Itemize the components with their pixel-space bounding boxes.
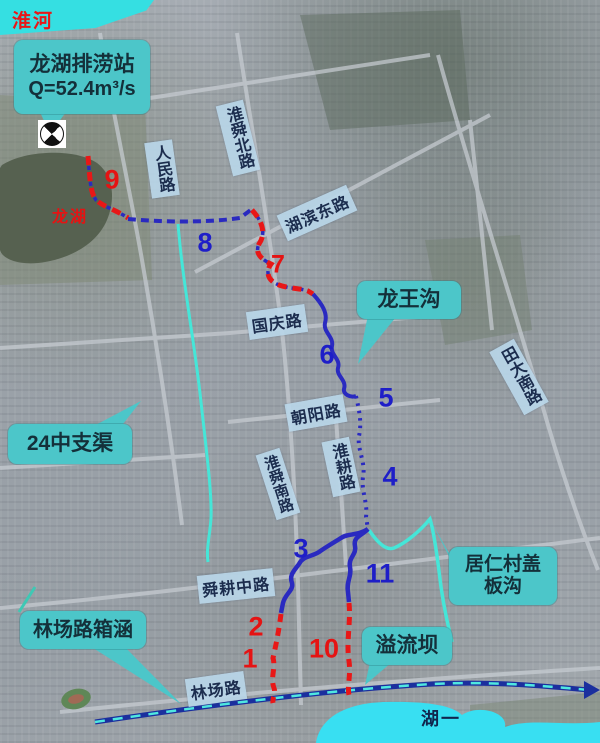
route-marker-1: 1 bbox=[242, 646, 257, 673]
route-marker-10: 10 bbox=[309, 636, 339, 663]
pump-station-name: 龙湖排涝站 bbox=[30, 53, 135, 77]
route-marker-8: 8 bbox=[197, 230, 212, 257]
route-marker-4: 4 bbox=[382, 464, 397, 491]
longwanggou-callout: 龙王沟 bbox=[357, 281, 461, 319]
route-marker-3: 3 bbox=[293, 536, 308, 563]
huai-river-label: 淮河 bbox=[12, 6, 54, 33]
annotated-satellite-map: 淮河 龙湖排涝站 Q=52.4m³/s 龙湖 湖一 龙王沟 24中支渠 居仁村盖… bbox=[0, 0, 600, 743]
bottom-lake-label: 湖一 bbox=[421, 705, 461, 731]
juren-callout: 居仁村盖 板沟 bbox=[449, 547, 557, 605]
pump-station-icon bbox=[38, 120, 66, 148]
route-marker-6: 6 bbox=[319, 342, 334, 369]
pump-station-callout: 龙湖排涝站 Q=52.4m³/s bbox=[14, 40, 150, 114]
yiliuba-callout: 溢流坝 bbox=[362, 627, 452, 665]
route-marker-11: 11 bbox=[366, 561, 395, 588]
teal-segment bbox=[19, 587, 35, 612]
route-4-blue-dotted bbox=[356, 396, 368, 529]
longhu-lake-label: 龙湖 bbox=[52, 203, 88, 227]
route-marker-9: 9 bbox=[104, 167, 119, 194]
route-marker-5: 5 bbox=[378, 385, 393, 412]
branch24-callout: 24中支渠 bbox=[8, 424, 132, 464]
pump-station-capacity: Q=52.4m³/s bbox=[28, 78, 135, 101]
route-marker-7: 7 bbox=[271, 253, 285, 278]
channel-24-line bbox=[178, 224, 211, 562]
route-marker-2: 2 bbox=[248, 614, 263, 641]
route-10-red bbox=[348, 603, 350, 695]
linchang-box-culvert-callout: 林场路箱涵 bbox=[20, 611, 146, 649]
